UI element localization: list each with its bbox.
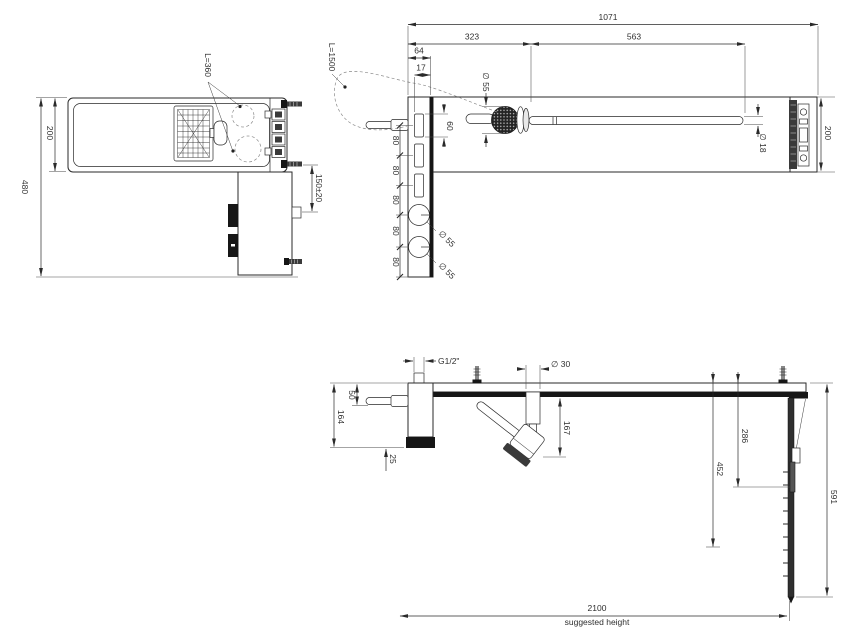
- dim-label-164: 164: [336, 410, 346, 424]
- front-handle: [366, 120, 408, 131]
- dim-label-60: 60: [445, 121, 455, 131]
- dia-label-head-55: ∅ 55: [481, 72, 491, 91]
- front-view: 1071 323 563 64 17 60 ∅ 55: [327, 12, 835, 281]
- dim-label-2100: 2100: [588, 603, 607, 613]
- label-thread-g12: G1/2": [438, 356, 459, 366]
- mounting-stud: [473, 366, 482, 384]
- label-hose-1500: L=1500: [327, 43, 337, 72]
- dim-label-323: 323: [465, 32, 479, 42]
- dim-label-150-20: 150±20: [314, 174, 324, 203]
- label-suggested-height: suggested height: [565, 617, 630, 627]
- dia-label-dock-30: ∅ 30: [551, 359, 570, 369]
- dim-label-200-plan: 200: [45, 126, 55, 140]
- front-knob-lower: [409, 237, 430, 258]
- dim-label-591: 591: [829, 490, 839, 504]
- dim-label-452: 452: [715, 462, 725, 476]
- plan-outlet-fitting: [292, 207, 301, 218]
- dim-label-64: 64: [414, 46, 424, 56]
- side-g-half-connector: [414, 373, 424, 383]
- dim-label-80-2: 80: [391, 166, 401, 176]
- front-body: [334, 71, 817, 277]
- dim-label-25: 25: [388, 454, 398, 464]
- label-hose-360: L=360: [203, 53, 213, 77]
- side-mixer-body: [366, 373, 435, 448]
- plan-control-upper: [228, 204, 238, 227]
- mounting-screw: [281, 160, 302, 168]
- dia-label-knob-upper-55: ∅ 55: [437, 228, 458, 249]
- side-handshower-wand: [475, 400, 522, 440]
- drawing-sheet: 480 200 L=360 150±20: [0, 0, 859, 635]
- dim-label-17: 17: [416, 63, 426, 73]
- front-handshower-wand: [466, 114, 494, 124]
- dim-label-286: 286: [740, 429, 750, 443]
- side-slider-handle: [790, 462, 795, 492]
- technical-drawing: 480 200 L=360 150±20: [0, 0, 859, 635]
- front-knob-upper: [409, 205, 430, 226]
- dia-label-bar-18: ∅ 18: [758, 133, 768, 152]
- front-slot-3: [415, 174, 424, 197]
- front-slot-1: [415, 114, 424, 137]
- side-view: G1/2" ∅ 30 50 164 25 167 286: [330, 356, 839, 627]
- dim-label-200-front: 200: [823, 126, 833, 140]
- leader-dot: [343, 85, 346, 88]
- dim-label-80-1: 80: [391, 136, 401, 146]
- mounting-screw: [281, 100, 302, 108]
- side-body: [366, 366, 808, 604]
- side-slider: [792, 448, 800, 463]
- plan-rain-grate: [174, 106, 213, 161]
- side-drop-rail: [783, 398, 806, 604]
- dim-label-80-4: 80: [391, 226, 401, 236]
- front-handshower-head: [492, 107, 519, 134]
- dim-label-80-5: 80: [391, 257, 401, 267]
- dim-label-480: 480: [20, 180, 30, 194]
- plan-body: [68, 98, 302, 275]
- dim-label-1071: 1071: [599, 12, 618, 22]
- mounting-screw: [284, 258, 302, 265]
- side-handle: [366, 398, 393, 405]
- dia-label-knob-lower-55: ∅ 55: [437, 260, 458, 281]
- mounting-stud: [779, 366, 788, 384]
- plan-wall-column: [228, 172, 302, 275]
- front-slot-2: [415, 144, 424, 167]
- dim-label-563: 563: [627, 32, 641, 42]
- dim-label-50: 50: [347, 390, 357, 400]
- front-slide-bar: [529, 117, 743, 125]
- side-spout-band: [406, 437, 435, 448]
- dim-label-167: 167: [562, 421, 572, 435]
- side-bar: [433, 383, 806, 392]
- dim-label-80-3: 80: [391, 195, 401, 205]
- plan-view: 480 200 L=360 150±20: [20, 53, 324, 277]
- front-wall-mount: [789, 97, 817, 172]
- leader-dot: [231, 149, 234, 152]
